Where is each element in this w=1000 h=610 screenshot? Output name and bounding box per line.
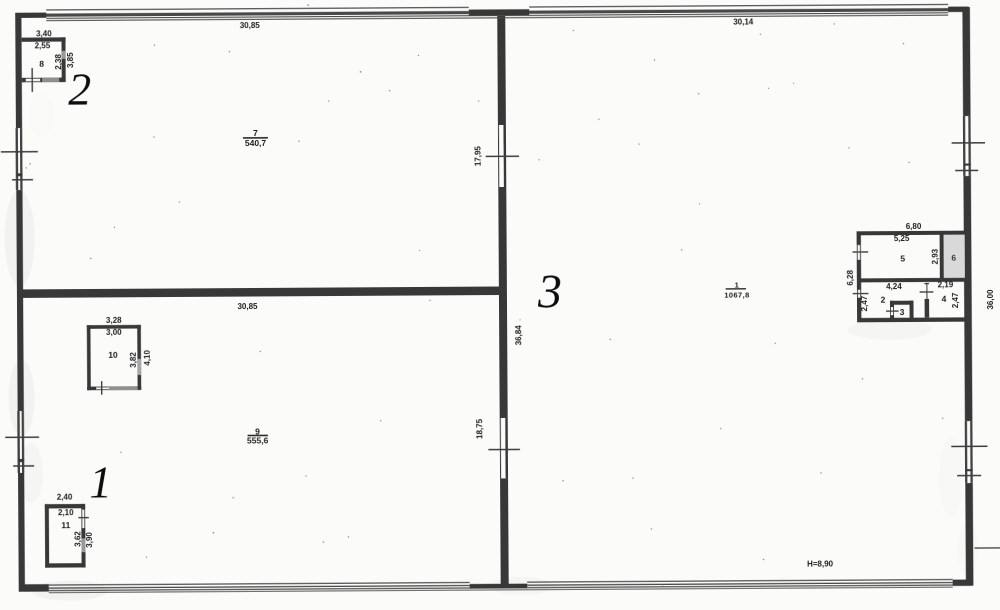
svg-text:7: 7 xyxy=(253,128,258,138)
svg-text:4,10: 4,10 xyxy=(143,349,152,365)
svg-text:2,47: 2,47 xyxy=(860,295,869,311)
svg-text:1067,8: 1067,8 xyxy=(724,290,749,299)
svg-text:6,80: 6,80 xyxy=(906,222,922,231)
svg-text:5: 5 xyxy=(900,254,905,264)
svg-text:2,93: 2,93 xyxy=(930,248,939,264)
svg-text:10: 10 xyxy=(108,350,118,360)
svg-text:3,00: 3,00 xyxy=(106,328,122,337)
svg-text:4: 4 xyxy=(942,294,947,304)
svg-text:3,62: 3,62 xyxy=(73,531,82,547)
svg-text:6: 6 xyxy=(951,253,956,263)
svg-text:555,6: 555,6 xyxy=(247,436,269,446)
svg-text:4,24: 4,24 xyxy=(886,282,902,291)
svg-text:2,47: 2,47 xyxy=(951,292,960,308)
svg-text:2,38: 2,38 xyxy=(54,54,63,70)
svg-text:1: 1 xyxy=(89,458,112,508)
svg-text:3: 3 xyxy=(537,265,562,318)
svg-text:3,28: 3,28 xyxy=(106,316,122,325)
svg-text:30,14: 30,14 xyxy=(733,17,754,26)
svg-text:17,95: 17,95 xyxy=(474,146,483,167)
svg-text:3,82: 3,82 xyxy=(129,352,138,368)
svg-text:2: 2 xyxy=(68,63,91,114)
svg-text:3,90: 3,90 xyxy=(85,532,94,548)
svg-text:30,85: 30,85 xyxy=(237,302,258,311)
svg-text:36,00: 36,00 xyxy=(986,289,995,310)
svg-text:3: 3 xyxy=(900,307,905,317)
svg-text:36,84: 36,84 xyxy=(514,325,523,346)
svg-text:540,7: 540,7 xyxy=(245,138,267,148)
svg-text:2,19: 2,19 xyxy=(938,280,954,289)
svg-text:30,85: 30,85 xyxy=(240,21,261,30)
svg-text:2: 2 xyxy=(881,295,886,305)
svg-text:2,55: 2,55 xyxy=(35,41,51,50)
svg-text:18,75: 18,75 xyxy=(475,418,484,439)
svg-text:H=8,90: H=8,90 xyxy=(807,560,834,569)
svg-text:2,10: 2,10 xyxy=(58,508,74,517)
svg-text:11: 11 xyxy=(61,520,70,530)
svg-text:8: 8 xyxy=(39,59,44,69)
svg-text:3,40: 3,40 xyxy=(36,29,52,38)
svg-text:5,25: 5,25 xyxy=(894,234,910,243)
svg-text:6,28: 6,28 xyxy=(846,270,855,286)
svg-text:2,40: 2,40 xyxy=(57,493,73,502)
svg-text:1: 1 xyxy=(735,280,740,289)
